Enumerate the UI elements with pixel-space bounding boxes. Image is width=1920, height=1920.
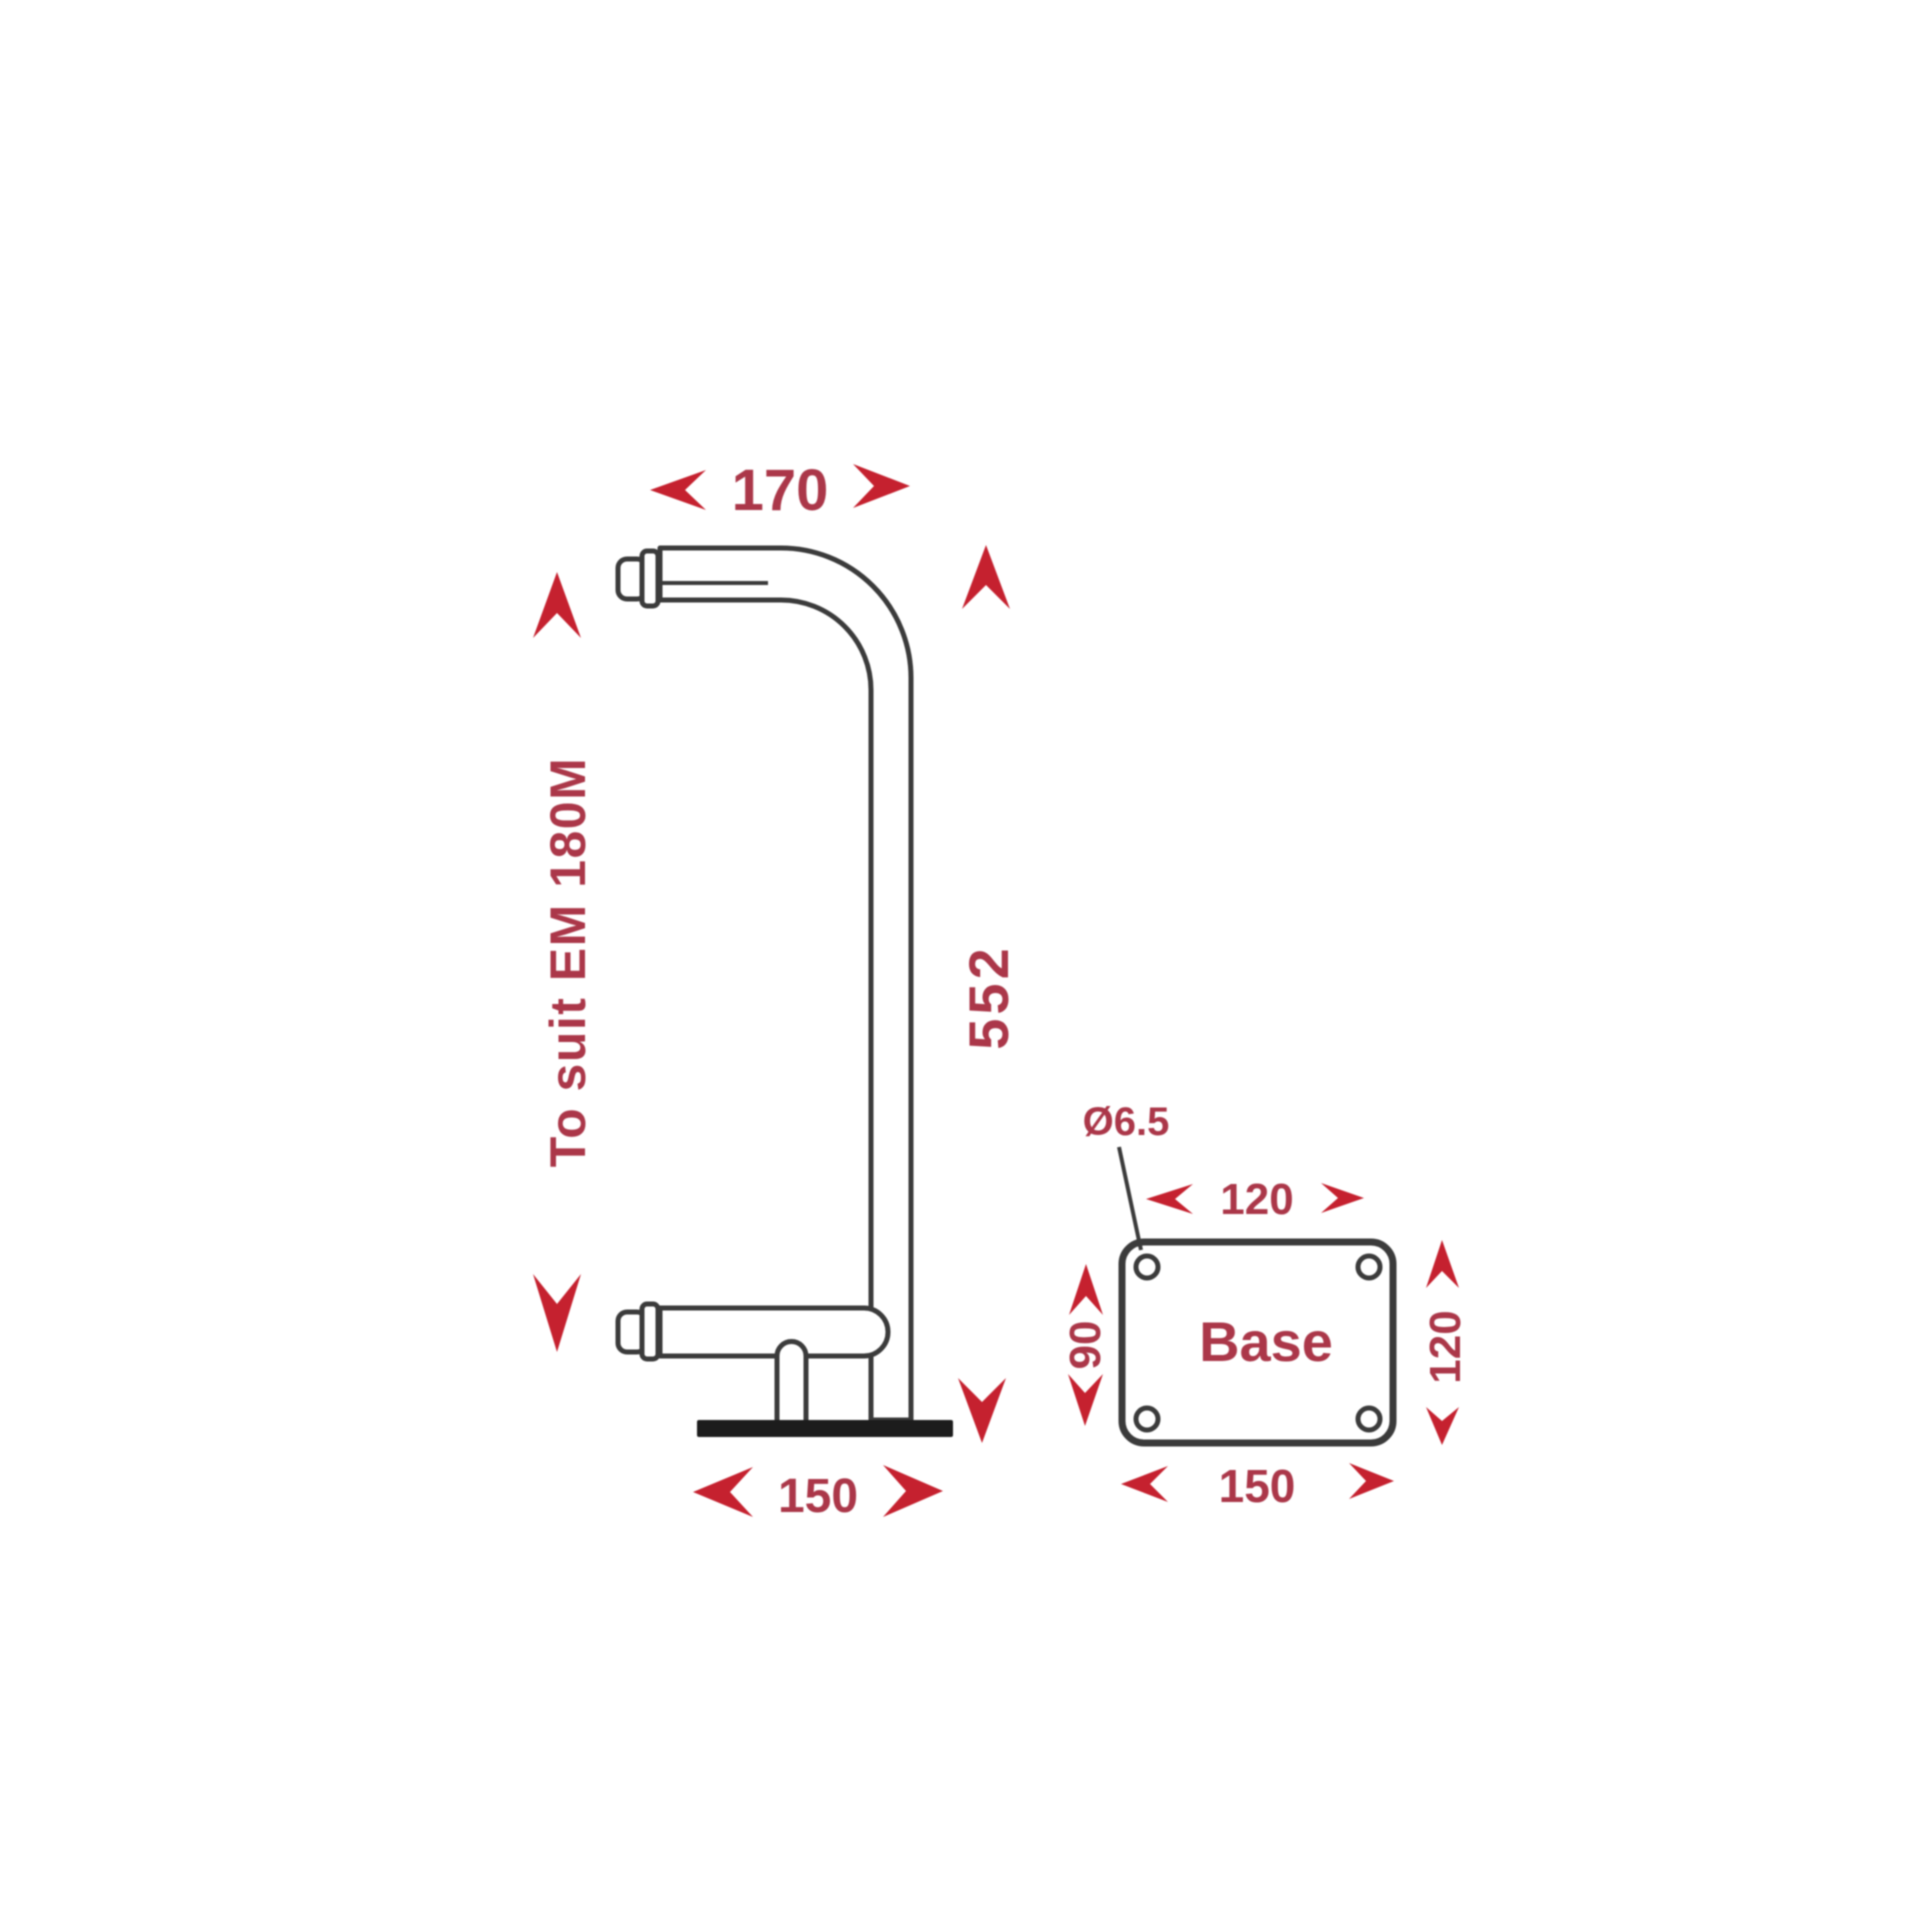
drawing-canvas: 170 To suit EM 180M 552 150 [0, 0, 1920, 1920]
dim-90-down-arrow-icon [1068, 1374, 1103, 1426]
dim-170-label: 170 [732, 458, 829, 523]
top-washer [642, 551, 658, 606]
dim-150-plan-label: 150 [1219, 1460, 1296, 1512]
lower-arm [660, 1308, 888, 1356]
elevation-view: 170 To suit EM 180M 552 150 [533, 458, 1020, 1523]
hole-leader-line [1119, 1147, 1141, 1250]
dim-90-label: 90 [1061, 1321, 1110, 1370]
pole-outline [660, 548, 911, 1420]
base-plan-view: Ø6.5 120 90 120 150 Base [1061, 1100, 1470, 1512]
dim-552-up-arrow-icon [962, 545, 1010, 609]
base-label: Base [1199, 1310, 1333, 1373]
dim-150-elev-label: 150 [778, 1470, 858, 1523]
hole-diameter-label: Ø6.5 [1083, 1100, 1170, 1144]
dim-552-down-arrow-icon [958, 1378, 1006, 1443]
dim-120-top-right-arrow-icon [1321, 1183, 1364, 1213]
dim-120-top-label: 120 [1220, 1175, 1293, 1224]
suit-dim-up-arrow-icon [533, 572, 581, 638]
bolt-hole-bottom-left [1136, 1408, 1158, 1430]
dim-150-plan-left-arrow-icon [1121, 1466, 1168, 1502]
bolt-hole-bottom-right [1358, 1408, 1380, 1430]
dim-150-plan-right-arrow-icon [1349, 1463, 1394, 1499]
suit-dim-down-arrow-icon [533, 1274, 581, 1352]
dim-120-top-left-arrow-icon [1146, 1184, 1193, 1214]
bolt-hole-top-left [1136, 1256, 1158, 1278]
base-bar [697, 1420, 953, 1437]
suit-note-label: To suit EM 180M [540, 757, 596, 1168]
dim-170-left-arrow-icon [650, 470, 706, 510]
dim-120-right-up-arrow-icon [1426, 1240, 1459, 1288]
dim-120-right-down-arrow-icon [1426, 1407, 1459, 1445]
dim-150-elev-left-arrow-icon [693, 1467, 753, 1517]
dimension-drawing: 170 To suit EM 180M 552 150 [0, 0, 1920, 1920]
lower-washer [642, 1304, 658, 1359]
dim-90-up-arrow-icon [1069, 1264, 1103, 1315]
dim-120-right-label: 120 [1421, 1310, 1470, 1383]
dim-552-label: 552 [957, 944, 1020, 1049]
dim-150-elev-right-arrow-icon [883, 1465, 943, 1517]
u-clamp [777, 1342, 806, 1421]
dim-170-right-arrow-icon [853, 464, 910, 508]
bolt-hole-top-right [1358, 1256, 1380, 1278]
